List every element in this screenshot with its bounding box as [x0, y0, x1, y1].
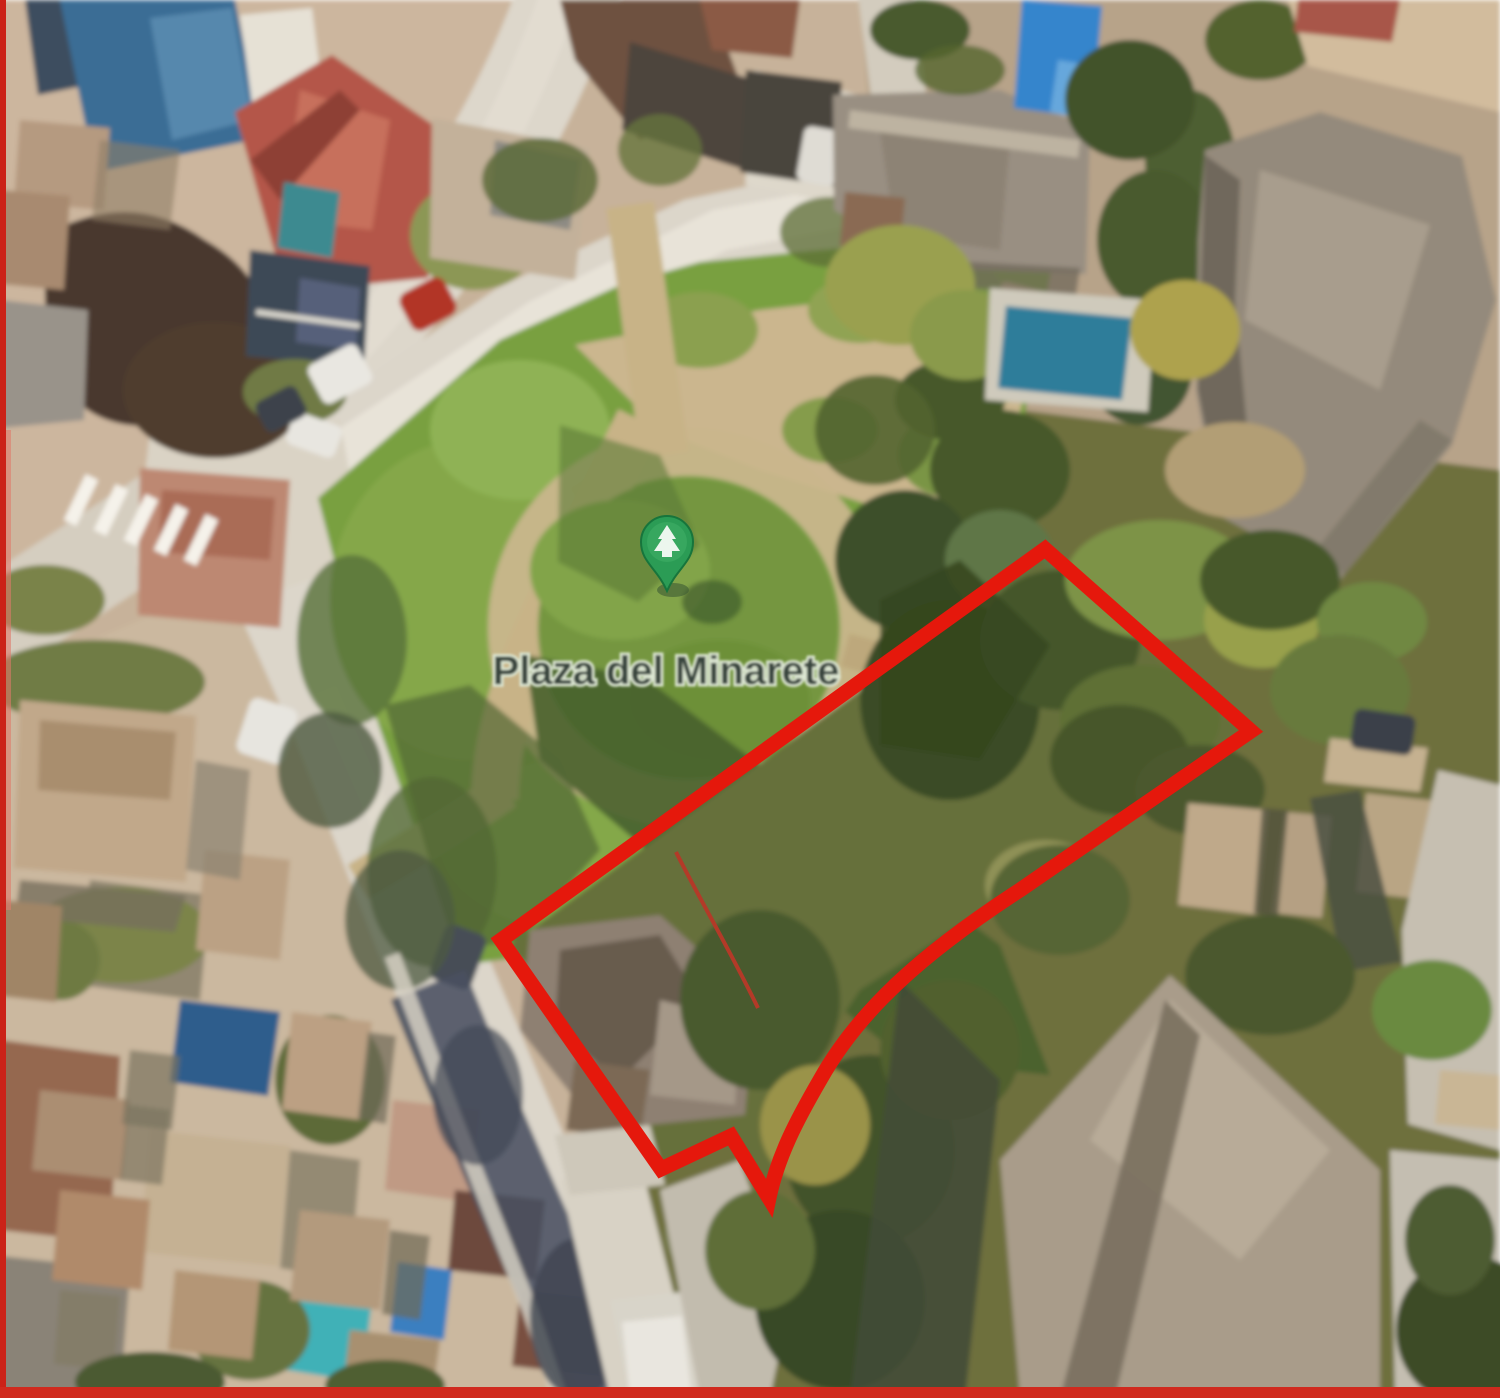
svg-text:Plaza del Minarete: Plaza del Minarete	[493, 649, 840, 693]
